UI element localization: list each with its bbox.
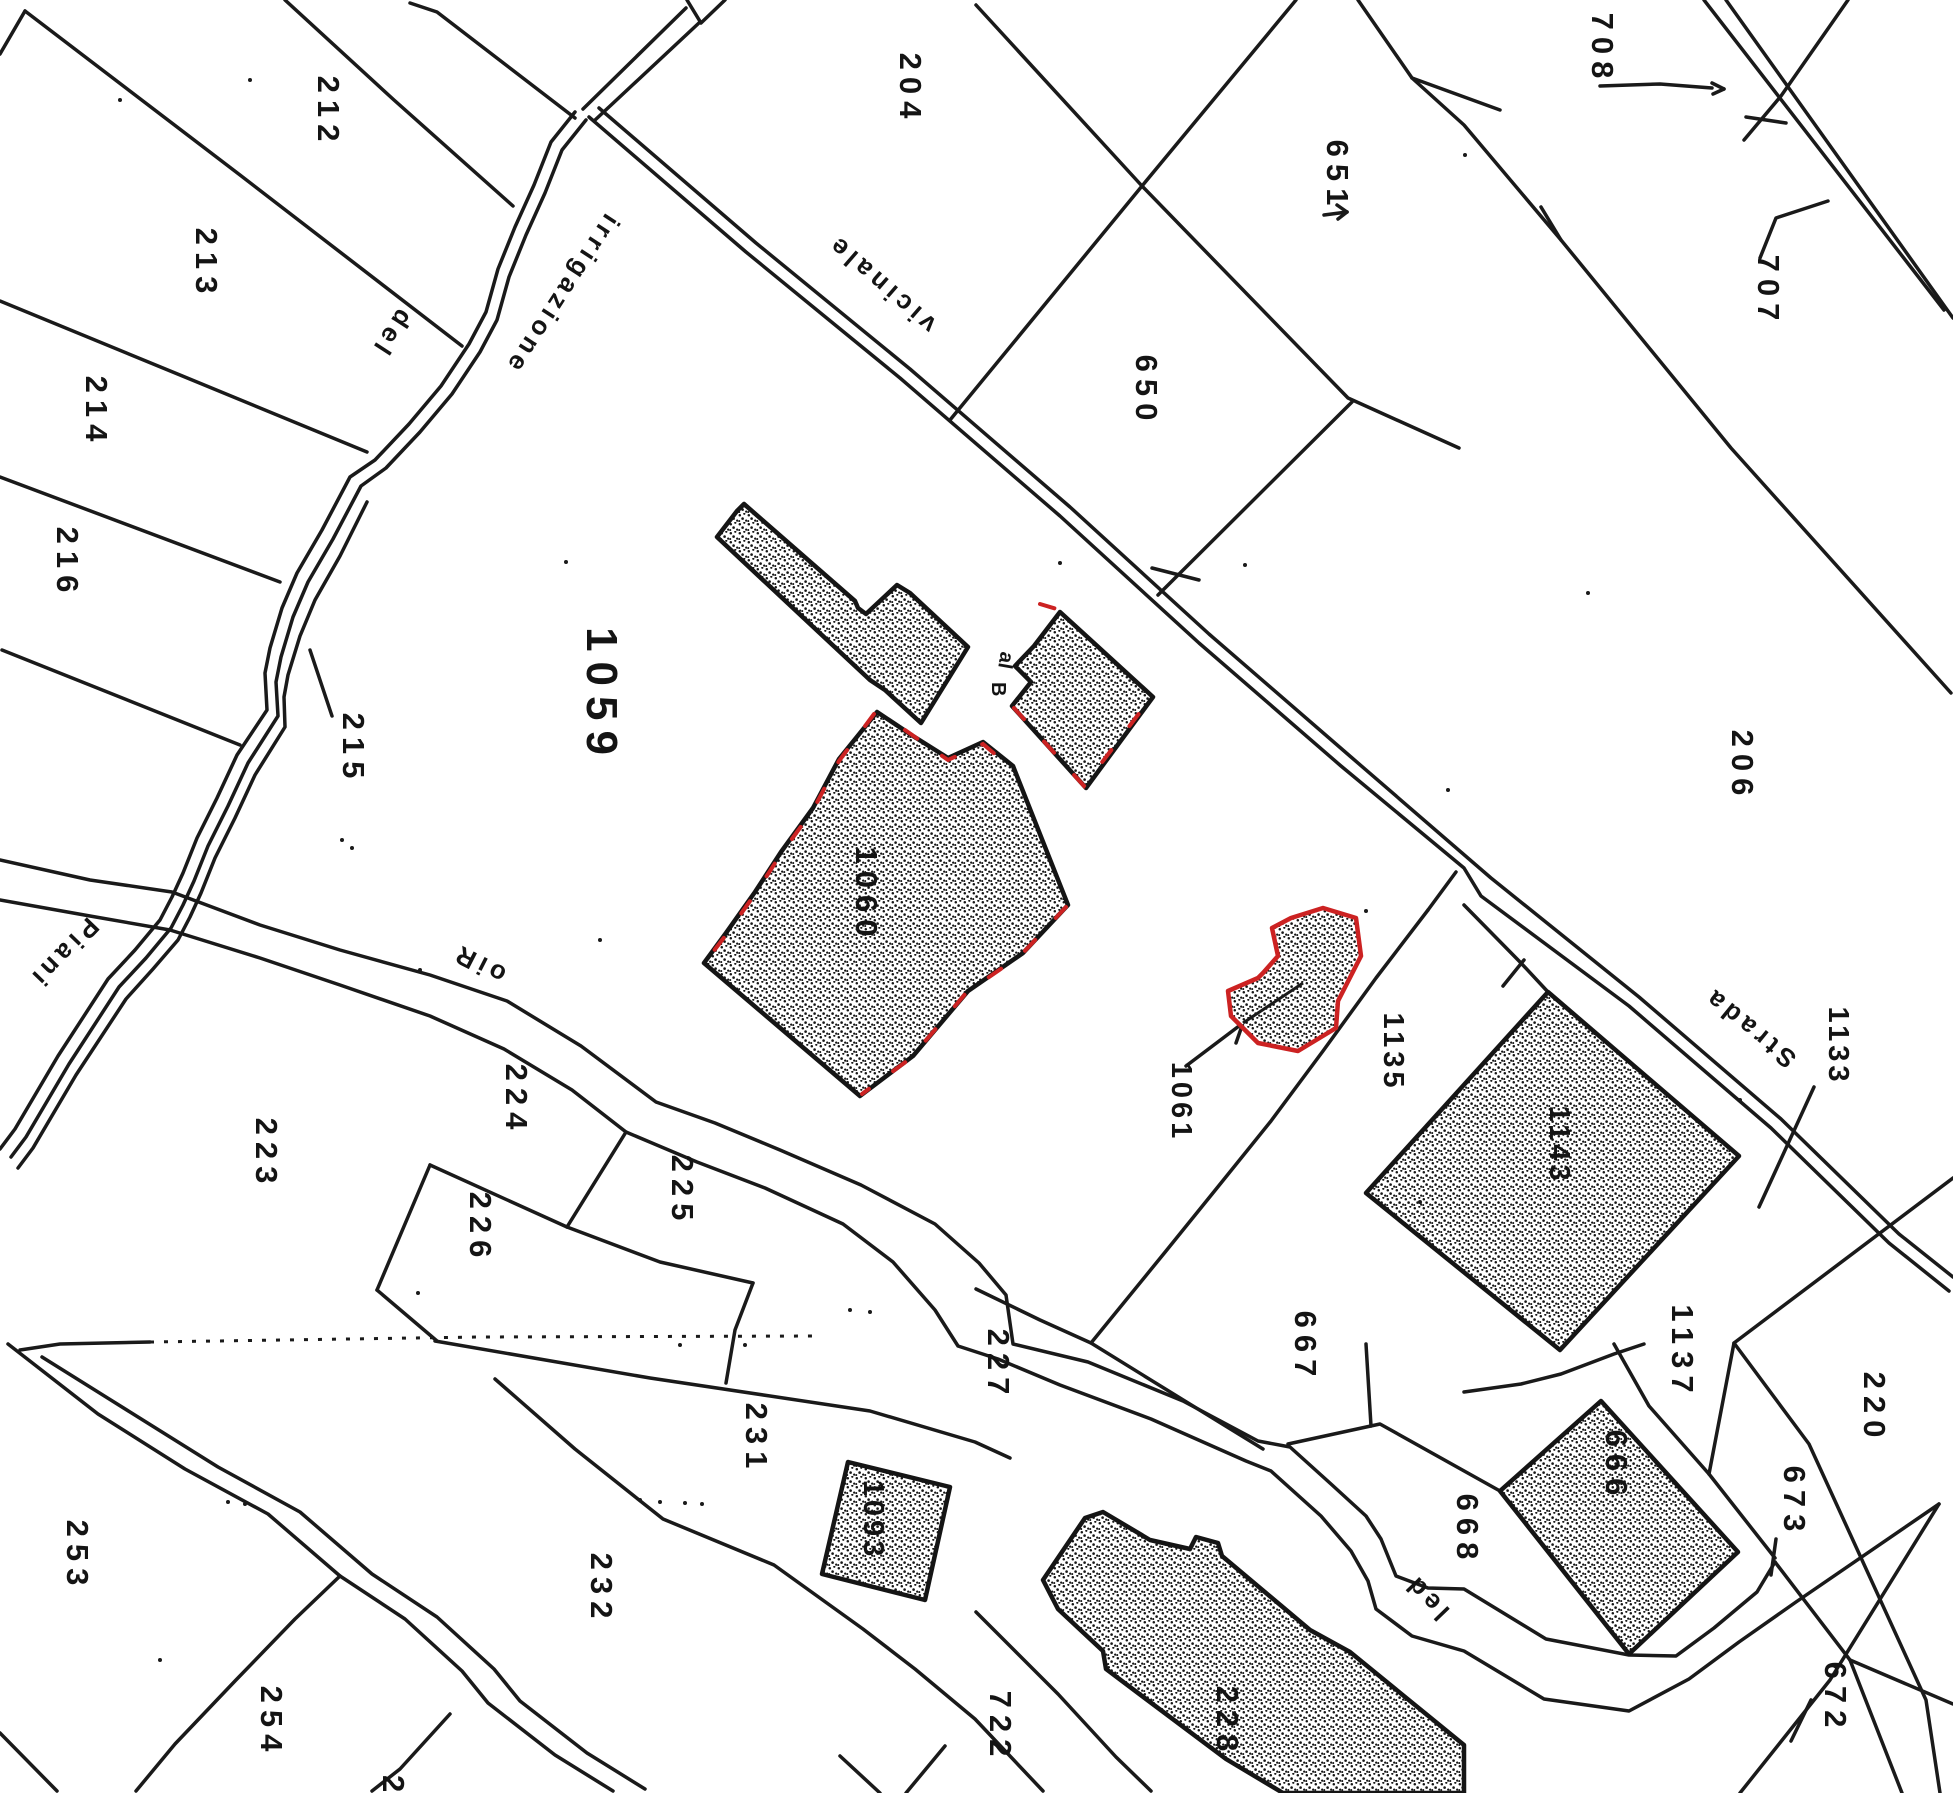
svg-text:666: 666 bbox=[1599, 1430, 1634, 1503]
svg-text:1137: 1137 bbox=[1665, 1304, 1700, 1399]
svg-text:1093: 1093 bbox=[857, 1480, 889, 1561]
svg-text:225: 225 bbox=[665, 1155, 700, 1228]
svg-text:667: 667 bbox=[1288, 1311, 1323, 1384]
svg-text:1135: 1135 bbox=[1377, 1013, 1409, 1092]
svg-text:214: 214 bbox=[79, 376, 114, 449]
svg-text:223: 223 bbox=[249, 1118, 284, 1191]
svg-text:651: 651 bbox=[1320, 140, 1355, 213]
svg-text:650: 650 bbox=[1129, 355, 1164, 428]
svg-text:227: 227 bbox=[981, 1329, 1016, 1402]
svg-text:673: 673 bbox=[1777, 1466, 1812, 1539]
svg-text:232: 232 bbox=[584, 1553, 619, 1626]
svg-text:216: 216 bbox=[50, 527, 85, 600]
svg-text:206: 206 bbox=[1725, 730, 1760, 803]
svg-text:1133: 1133 bbox=[1822, 1007, 1854, 1086]
svg-text:668: 668 bbox=[1450, 1494, 1485, 1567]
svg-text:672: 672 bbox=[1818, 1662, 1853, 1735]
svg-text:707: 707 bbox=[1751, 255, 1786, 328]
svg-text:212: 212 bbox=[311, 76, 346, 149]
svg-text:B: B bbox=[987, 682, 1009, 696]
svg-text:220: 220 bbox=[1857, 1372, 1892, 1445]
svg-text:1059: 1059 bbox=[577, 627, 626, 765]
svg-text:231: 231 bbox=[739, 1403, 774, 1476]
svg-text:1143: 1143 bbox=[1543, 1106, 1575, 1185]
svg-text:228: 228 bbox=[1210, 1686, 1245, 1759]
svg-text:722: 722 bbox=[983, 1691, 1018, 1764]
svg-text:1061: 1061 bbox=[1165, 1062, 1197, 1143]
svg-text:215: 215 bbox=[336, 713, 371, 786]
svg-text:204: 204 bbox=[893, 53, 928, 126]
svg-text:226: 226 bbox=[463, 1192, 498, 1265]
svg-text:224: 224 bbox=[499, 1064, 534, 1137]
svg-text:708: 708 bbox=[1585, 13, 1620, 86]
svg-text:253: 253 bbox=[60, 1520, 95, 1593]
svg-text:213: 213 bbox=[189, 228, 224, 301]
svg-text:254: 254 bbox=[254, 1686, 289, 1759]
svg-text:1060: 1060 bbox=[849, 847, 884, 944]
svg-text:2: 2 bbox=[376, 1775, 411, 1793]
